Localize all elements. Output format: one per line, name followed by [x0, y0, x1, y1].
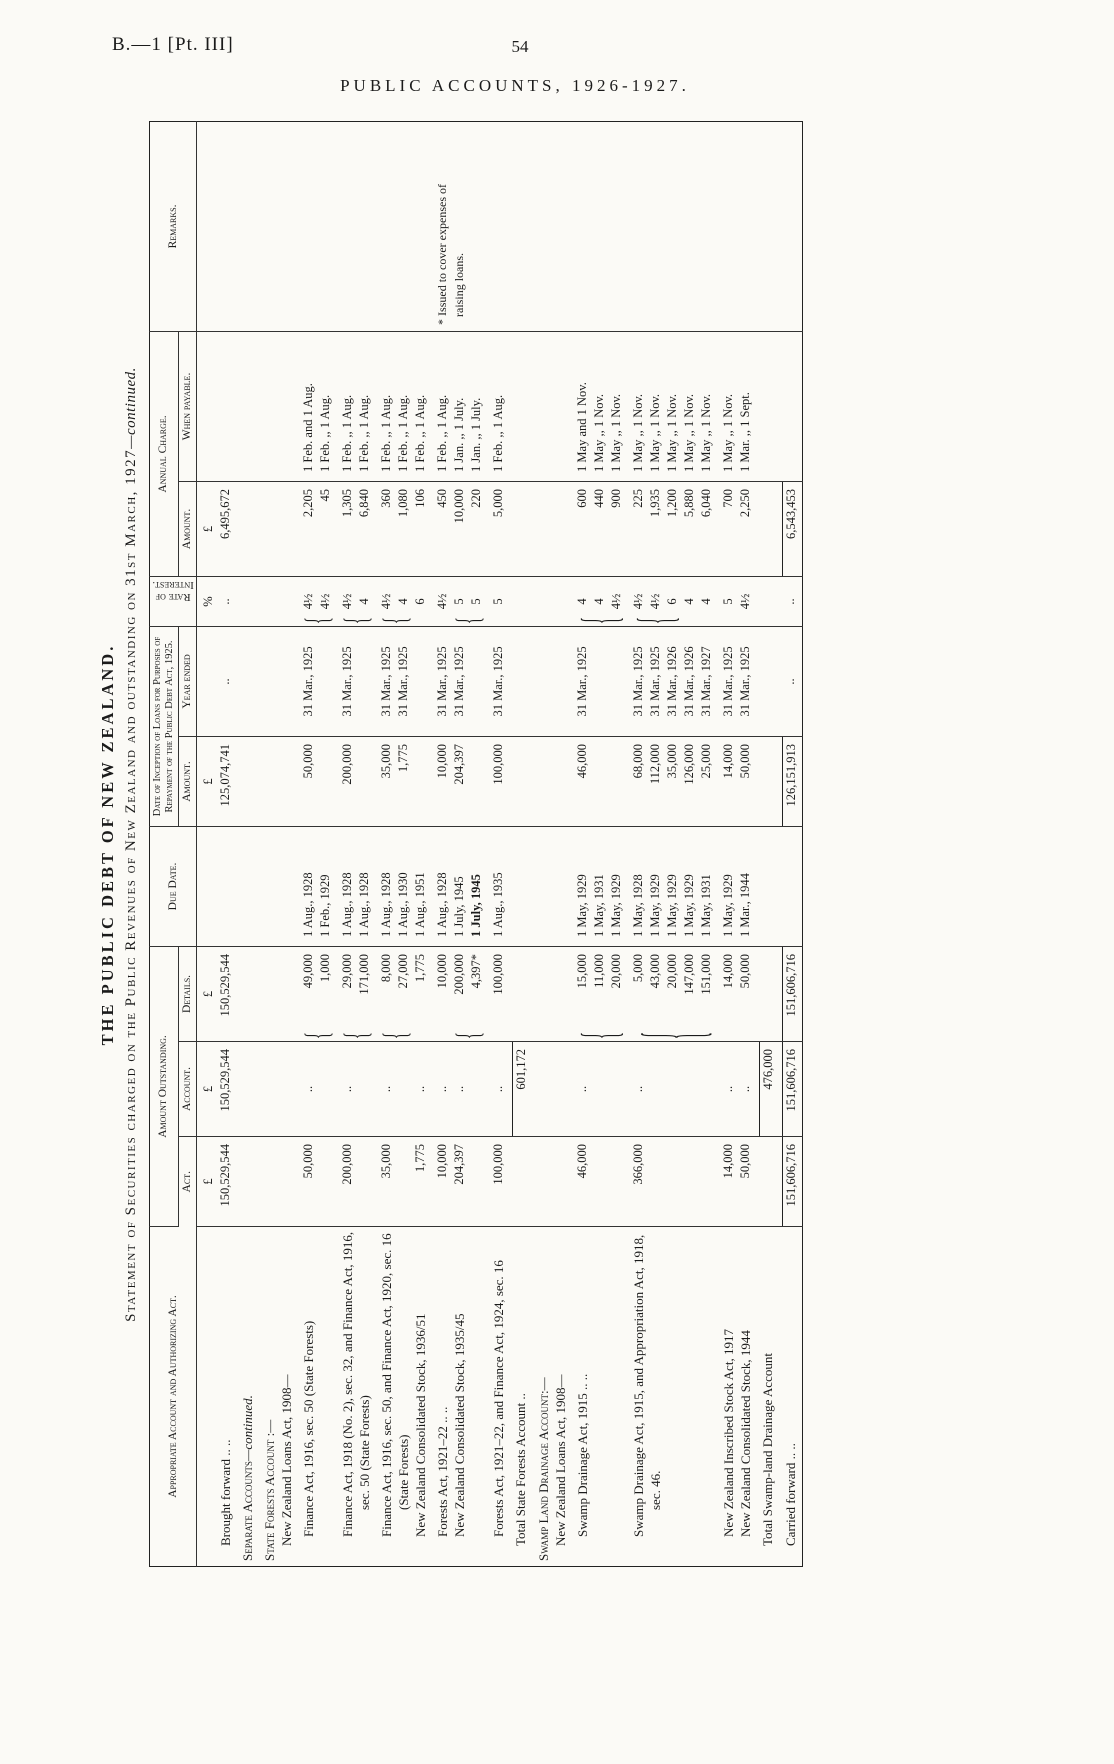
cell-payable: [258, 331, 297, 481]
cell-due: 1 Aug., 1935: [487, 826, 509, 946]
cell-act: [532, 1137, 571, 1227]
cell-payable: [509, 331, 532, 481]
col-header-act: Act.: [179, 1137, 197, 1227]
cell-details: [532, 946, 571, 1041]
cell-due: [258, 826, 297, 946]
grouping-brace: {: [630, 615, 681, 624]
cell-annual: [532, 481, 571, 576]
cell-payable: 1 Feb. ,, 1 Aug.: [487, 331, 509, 481]
cell-payable: 1 Feb. ,, 1 Aug.1 Feb. ,, 1 Aug.1 Feb. ,…: [375, 331, 431, 481]
grouping-brace: {: [630, 1031, 715, 1040]
cell-account-label: Finance Act, 1918 (No. 2), sec. 32, and …: [336, 1227, 375, 1567]
col-header-inception-amount: Amount.: [179, 736, 197, 826]
cell-acct: 476,000: [756, 1042, 779, 1137]
col-header-annual-amount: Amount.: [179, 481, 197, 576]
cell-details: 15,00011,00020,000{: [571, 946, 627, 1041]
cell-annual: 600440900: [571, 481, 627, 576]
cell-payable: 1 May ,, 1 Nov.1 May ,, 1 Nov.1 May ,, 1…: [627, 331, 717, 481]
cell-payable: [779, 331, 803, 481]
cell-acct: ..: [297, 1042, 336, 1137]
cell-year: 31 Mar., 192531 Mar., 1925: [375, 626, 431, 736]
cell-annual: 5,000: [487, 481, 509, 576]
cell-incep_amount: 10,000204,397: [431, 736, 487, 826]
cell-acct: 151,606,716: [779, 1042, 803, 1137]
grouping-brace: {: [300, 615, 334, 624]
cell-due: 1 May, 19291 Mar., 1944: [717, 826, 756, 946]
cell-annual: 45010,000220: [431, 481, 487, 576]
cell-details: [756, 946, 779, 1041]
subtitle-continued: —continued.: [123, 367, 139, 449]
grouping-brace: {: [574, 1031, 625, 1040]
cell-annual: [756, 481, 779, 576]
cell-year: 31 Mar., 192531 Mar., 1925: [717, 626, 756, 736]
cell-remarks: [532, 121, 571, 331]
cell-due: 1 Aug., 19281 Feb., 1929: [297, 826, 336, 946]
cell-acct: [236, 1042, 258, 1137]
cell-acct: 601,172: [509, 1042, 532, 1137]
cell-annual: 6,543,453: [779, 481, 803, 576]
cell-incep_amount: [236, 736, 258, 826]
cell-incep_amount: 50,000: [297, 736, 336, 826]
cell-account-label: Forests Act, 1921–22, and Finance Act, 1…: [487, 1227, 509, 1567]
cell-rate: 4½55{: [431, 576, 487, 626]
col-header-year-ended: Year ended: [179, 626, 197, 736]
cell-remarks: [297, 121, 336, 331]
row-forests-act-1921-22-finance-1924: Forests Act, 1921–22, and Finance Act, 1…: [487, 121, 509, 1566]
cell-rate: 54½: [717, 576, 756, 626]
cell-remarks: * Issued to cover expenses ofraising loa…: [431, 121, 487, 331]
cell-acct: ..: [571, 1042, 627, 1137]
cell-act: £150,529,544: [197, 1137, 237, 1227]
row-swamp-land-heading: Swamp Land Drainage Account:—New Zealand…: [532, 121, 571, 1566]
cell-payable: 1 Feb. ,, 1 Aug.1 Feb. ,, 1 Aug.: [336, 331, 375, 481]
cell-account-label: Swamp Drainage Act, 1915 .. ..: [571, 1227, 627, 1567]
cell-act: 35,000 1,775: [375, 1137, 431, 1227]
cell-remarks: [258, 121, 297, 331]
cell-annual: 3601,080106: [375, 481, 431, 576]
cell-acct: [532, 1042, 571, 1137]
cell-rate: ..: [779, 576, 803, 626]
col-header-annual-charge: Annual Charge.: [150, 331, 179, 576]
cell-annual: 7002,250: [717, 481, 756, 576]
rotated-table-block: THE PUBLIC DEBT OF NEW ZEALAND. Statemen…: [98, 117, 898, 1572]
cell-incep_amount: 126,151,913: [779, 736, 803, 826]
grouping-brace: {: [451, 1031, 485, 1040]
grouping-brace: {: [339, 615, 373, 624]
cell-year: ..: [197, 626, 237, 736]
cell-incep_amount: 200,000: [336, 736, 375, 826]
securities-table: Appropriate Account and Authorizing Act.…: [149, 121, 803, 1567]
row-forests-act-1921-22: Forests Act, 1921–22 .. ..New Zealand Co…: [431, 121, 487, 1566]
cell-annual: [509, 481, 532, 576]
cell-due: [779, 826, 803, 946]
cell-details: [258, 946, 297, 1041]
cell-account-label: Swamp Land Drainage Account:—New Zealand…: [532, 1227, 571, 1567]
cell-account-label: Total State Forests Account ..: [509, 1227, 532, 1567]
cell-act: 200,000: [336, 1137, 375, 1227]
row-swamp-drainage-1915: Swamp Drainage Act, 1915 .. ..46,000..15…: [571, 121, 627, 1566]
cell-remarks: [375, 121, 431, 331]
cell-acct: ..: [336, 1042, 375, 1137]
cell-payable: [236, 331, 258, 481]
cell-annual: 2251,9351,2005,8806,040: [627, 481, 717, 576]
cell-due: 1 Aug., 19281 Aug., 1928: [336, 826, 375, 946]
row-nz-inscribed-stock-1917: New Zealand Inscribed Stock Act, 1917New…: [717, 121, 756, 1566]
cell-incep_amount: 35,0001,775: [375, 736, 431, 826]
cell-year: 31 Mar., 1925: [297, 626, 336, 736]
cell-acct: .. ..: [375, 1042, 431, 1137]
cell-year: 31 Mar., 192531 Mar., 192531 Mar., 19263…: [627, 626, 717, 736]
cell-acct: ....: [431, 1042, 487, 1137]
cell-year: [258, 626, 297, 736]
cell-rate: 4½46{: [375, 576, 431, 626]
cell-payable: [756, 331, 779, 481]
cell-due: [756, 826, 779, 946]
cell-annual: 2,20545: [297, 481, 336, 576]
cell-account-label: Separate Accounts—continued.: [236, 1227, 258, 1567]
cell-year: [236, 626, 258, 736]
cell-details: 151,606,716: [779, 946, 803, 1041]
cell-year: 31 Mar., 192531 Mar., 1925: [431, 626, 487, 736]
col-header-appropriate-account: Appropriate Account and Authorizing Act.: [150, 1227, 197, 1567]
cell-year: [532, 626, 571, 736]
grouping-brace: {: [574, 615, 625, 624]
row-state-forests-heading: State Forests Account :—New Zealand Loan…: [258, 121, 297, 1566]
cell-rate: %..: [197, 576, 237, 626]
row-total-swamp-land: Total Swamp-land Drainage Account476,000: [756, 121, 779, 1566]
cell-incep_amount: 68,000112,00035,000126,00025,000: [627, 736, 717, 826]
cell-act: [258, 1137, 297, 1227]
cell-due: 1 Aug., 19281 July, 19451 July, 1945: [431, 826, 487, 946]
row-swamp-drainage-1915-appropriation: Swamp Drainage Act, 1915, and Appropriat…: [627, 121, 717, 1566]
row-finance-act-1916-1920: Finance Act, 1916, sec. 50, and Finance …: [375, 121, 431, 1566]
row-total-state-forests: Total State Forests Account ..601,172: [509, 121, 532, 1566]
cell-rate: [236, 576, 258, 626]
cell-act: 151,606,716: [779, 1137, 803, 1227]
grouping-brace: {: [339, 1031, 373, 1040]
cell-year: ..: [779, 626, 803, 736]
col-header-remarks: Remarks.: [150, 121, 197, 331]
cell-rate: 4½4½{: [297, 576, 336, 626]
cell-due: 1 Aug., 19281 Aug., 19301 Aug., 1951: [375, 826, 431, 946]
subtitle-text: Statement of Securities charged on the P…: [123, 449, 139, 1322]
cell-details: 5,00043,00020,000147,000151,000{: [627, 946, 717, 1041]
cell-account-label: Finance Act, 1916, sec. 50 (State Forest…: [297, 1227, 336, 1567]
cell-remarks: [571, 121, 627, 331]
cell-act: 366,000: [627, 1137, 717, 1227]
cell-rate: 5: [487, 576, 509, 626]
cell-rate: [532, 576, 571, 626]
cell-acct: ....: [717, 1042, 756, 1137]
main-title: THE PUBLIC DEBT OF NEW ZEALAND.: [98, 117, 118, 1572]
cell-account-label: Carried forward .. ..: [779, 1227, 803, 1567]
cell-account-label: State Forests Account :—New Zealand Loan…: [258, 1227, 297, 1567]
cell-annual: 1,3056,840: [336, 481, 375, 576]
cell-rate: [509, 576, 532, 626]
cell-incep_amount: [509, 736, 532, 826]
cell-account-label: Forests Act, 1921–22 .. ..New Zealand Co…: [431, 1227, 487, 1567]
cell-details: 29,000171,000{: [336, 946, 375, 1041]
cell-year: 31 Mar., 1925: [571, 626, 627, 736]
cell-incep_amount: [532, 736, 571, 826]
cell-act: 10,000204,397: [431, 1137, 487, 1227]
row-separate-accounts-heading: Separate Accounts—continued.: [236, 121, 258, 1566]
cell-account-label: Total Swamp-land Drainage Account: [756, 1227, 779, 1567]
cell-annual: £6,495,672: [197, 481, 237, 576]
cell-act: [236, 1137, 258, 1227]
cell-due: [197, 826, 237, 946]
cell-payable: [197, 331, 237, 481]
cell-acct: £150,529,544: [197, 1042, 237, 1137]
grouping-brace: {: [378, 615, 412, 624]
cell-payable: 1 Feb. and 1 Aug.1 Feb. ,, 1 Aug.: [297, 331, 336, 481]
col-header-details: Details.: [179, 946, 197, 1041]
cell-year: 31 Mar., 1925: [336, 626, 375, 736]
col-header-rate-of-interest: Rate of Interest.: [150, 576, 197, 626]
page-number: 54: [0, 37, 1040, 57]
cell-due: [509, 826, 532, 946]
row-carried-forward: Carried forward .. ..151,606,716151,606,…: [779, 121, 803, 1566]
cell-rate: 444½{: [571, 576, 627, 626]
cell-remarks: [487, 121, 509, 331]
cell-remarks: [779, 121, 803, 331]
running-title: PUBLIC ACCOUNTS, 1926-1927.: [0, 76, 1030, 96]
row-brought-forward: Brought forward .. ..£150,529,544£150,52…: [197, 121, 237, 1566]
cell-rate: 4½4½644{: [627, 576, 717, 626]
cell-remarks: [627, 121, 717, 331]
cell-act: 100,000: [487, 1137, 509, 1227]
cell-year: [756, 626, 779, 736]
cell-details: 10,000200,0004,397*{: [431, 946, 487, 1041]
cell-act: 14,00050,000: [717, 1137, 756, 1227]
col-header-due-date: Due Date.: [150, 826, 197, 946]
row-finance-act-1916: Finance Act, 1916, sec. 50 (State Forest…: [297, 121, 336, 1566]
cell-remarks: [509, 121, 532, 331]
grouping-brace: {: [378, 1031, 412, 1040]
cell-due: [236, 826, 258, 946]
col-header-account: Account.: [179, 1042, 197, 1137]
cell-account-label: Swamp Drainage Act, 1915, and Appropriat…: [627, 1227, 717, 1567]
cell-due: [532, 826, 571, 946]
cell-details: [236, 946, 258, 1041]
cell-rate: [258, 576, 297, 626]
cell-due: 1 May, 19281 May, 19291 May, 19291 May, …: [627, 826, 717, 946]
document-page: B.—1 [Pt. III] 54 PUBLIC ACCOUNTS, 1926-…: [0, 0, 1114, 1764]
cell-act: [509, 1137, 532, 1227]
cell-rate: [756, 576, 779, 626]
col-header-when-payable: When payable.: [179, 331, 197, 481]
grouping-brace: {: [451, 615, 485, 624]
cell-acct: ..: [627, 1042, 717, 1137]
row-finance-act-1918: Finance Act, 1918 (No. 2), sec. 32, and …: [336, 121, 375, 1566]
cell-year: [509, 626, 532, 736]
cell-payable: [532, 331, 571, 481]
cell-payable: 1 May and 1 Nov.1 May ,, 1 Nov.1 May ,, …: [571, 331, 627, 481]
cell-act: [756, 1137, 779, 1227]
cell-details: £150,529,544: [197, 946, 237, 1041]
cell-remarks: [336, 121, 375, 331]
cell-year: 31 Mar., 1925: [487, 626, 509, 736]
cell-account-label: Finance Act, 1916, sec. 50, and Finance …: [375, 1227, 431, 1567]
cell-rate: 4½4{: [336, 576, 375, 626]
cell-payable: 1 Feb. ,, 1 Aug.1 Jan. ,, 1 July.1 Jan. …: [431, 331, 487, 481]
cell-acct: ..: [487, 1042, 509, 1137]
cell-details: 49,0001,000{: [297, 946, 336, 1041]
cell-payable: 1 May ,, 1 Nov.1 Mar. ,, 1 Sept.: [717, 331, 756, 481]
cell-remarks: [236, 121, 258, 331]
cell-acct: [258, 1042, 297, 1137]
cell-incep_amount: [258, 736, 297, 826]
header-row-groups: Appropriate Account and Authorizing Act.…: [150, 121, 179, 1566]
statement-subtitle: Statement of Securities charged on the P…: [123, 117, 140, 1572]
cell-remarks: [197, 121, 237, 331]
cell-details: 100,000: [487, 946, 509, 1041]
rate-of-interest-vertical-label: Rate of Interest.: [141, 579, 205, 603]
cell-account-label: Brought forward .. ..: [197, 1227, 237, 1567]
cell-incep_amount: 100,000: [487, 736, 509, 826]
cell-annual: [258, 481, 297, 576]
cell-remarks: [756, 121, 779, 331]
cell-incep_amount: 46,000: [571, 736, 627, 826]
cell-account-label: New Zealand Inscribed Stock Act, 1917New…: [717, 1227, 756, 1567]
cell-act: 50,000: [297, 1137, 336, 1227]
grouping-brace: {: [300, 1031, 334, 1040]
cell-details: 14,00050,000: [717, 946, 756, 1041]
col-header-amount-outstanding: Amount Outstanding.: [150, 946, 179, 1226]
cell-incep_amount: £125,074,741: [197, 736, 237, 826]
cell-due: 1 May, 19291 May, 19311 May, 1929: [571, 826, 627, 946]
cell-annual: [236, 481, 258, 576]
cell-incep_amount: [756, 736, 779, 826]
cell-details: [509, 946, 532, 1041]
cell-details: 8,00027,0001,775{: [375, 946, 431, 1041]
col-header-inception: Date of Inception of Loans for Purposes …: [150, 626, 179, 826]
cell-remarks: [717, 121, 756, 331]
cell-incep_amount: 14,00050,000: [717, 736, 756, 826]
cell-act: 46,000: [571, 1137, 627, 1227]
